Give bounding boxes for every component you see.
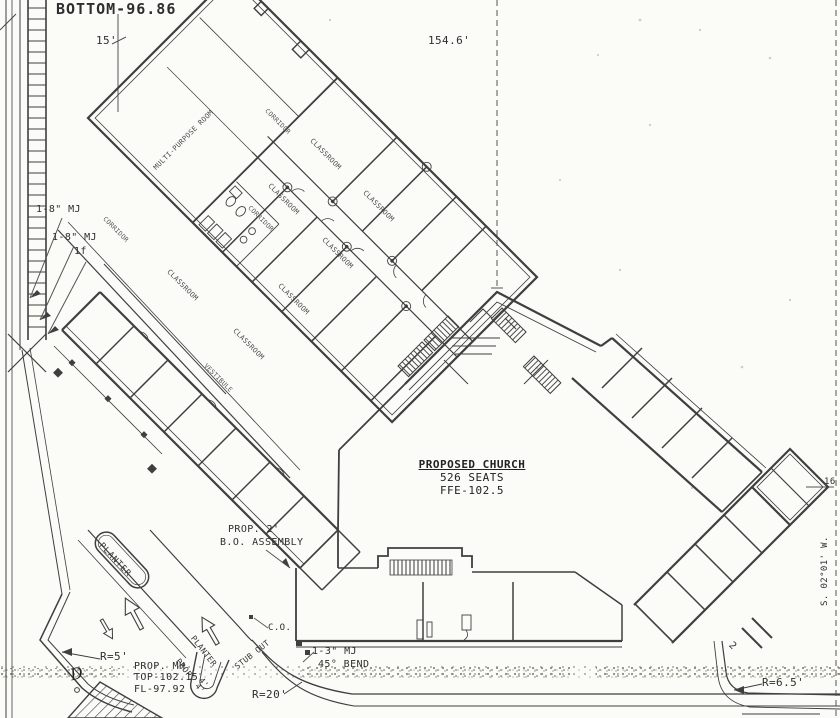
radius-r20: R=20': [252, 688, 287, 701]
note-mh-2: TOP-102.15: [134, 672, 198, 683]
church-title: PROPOSED CHURCH: [402, 458, 542, 471]
note-bo-assembly-2: B.O. ASSEMBLY: [220, 537, 303, 548]
church-right-wing: [572, 334, 828, 648]
note-cleanout: C.O.: [268, 623, 291, 633]
dimension-154ft: 154.6': [428, 34, 470, 47]
church-lobby: [296, 531, 622, 647]
church-label-block: PROPOSED CHURCH 526 SEATS FFE-102.5: [402, 458, 542, 497]
church-seats: 526 SEATS: [402, 471, 542, 484]
site-plan-canvas: BOTTOM-96.86 15' 154.6' 1-8" MJ 1-8" MJ …: [0, 0, 840, 718]
note-3in-mj: 1-3" MJ: [312, 646, 357, 657]
education-building: [88, 0, 540, 422]
site-plan-drawing: [0, 0, 840, 718]
church-ffe: FFE-102.5: [402, 484, 542, 497]
note-mh-1: PROP. MH: [134, 661, 185, 672]
dimension-16: 16: [824, 477, 836, 487]
note-fitting: 1f: [74, 246, 87, 257]
radius-r5: R=5': [100, 650, 128, 663]
note-45-bend: 45° BEND: [318, 659, 369, 670]
dimension-15ft: 15': [96, 34, 117, 47]
note-mh-3: FL-97.92: [134, 684, 185, 695]
left-street: [0, 0, 70, 718]
radius-r65: R=6.5': [762, 676, 804, 689]
note-8in-mj-2: 1-8" MJ: [52, 232, 97, 243]
elevation-note: BOTTOM-96.86: [56, 0, 176, 18]
note-bo-assembly-1: PROP. 2': [228, 524, 279, 535]
bearing-label: S. 02°01' W.: [820, 536, 830, 606]
note-8in-mj-1: 1-8" MJ: [36, 204, 81, 215]
reference-lines: [30, 0, 836, 718]
flow-arrow-icon: [97, 617, 117, 641]
stipple-band: [0, 666, 840, 680]
